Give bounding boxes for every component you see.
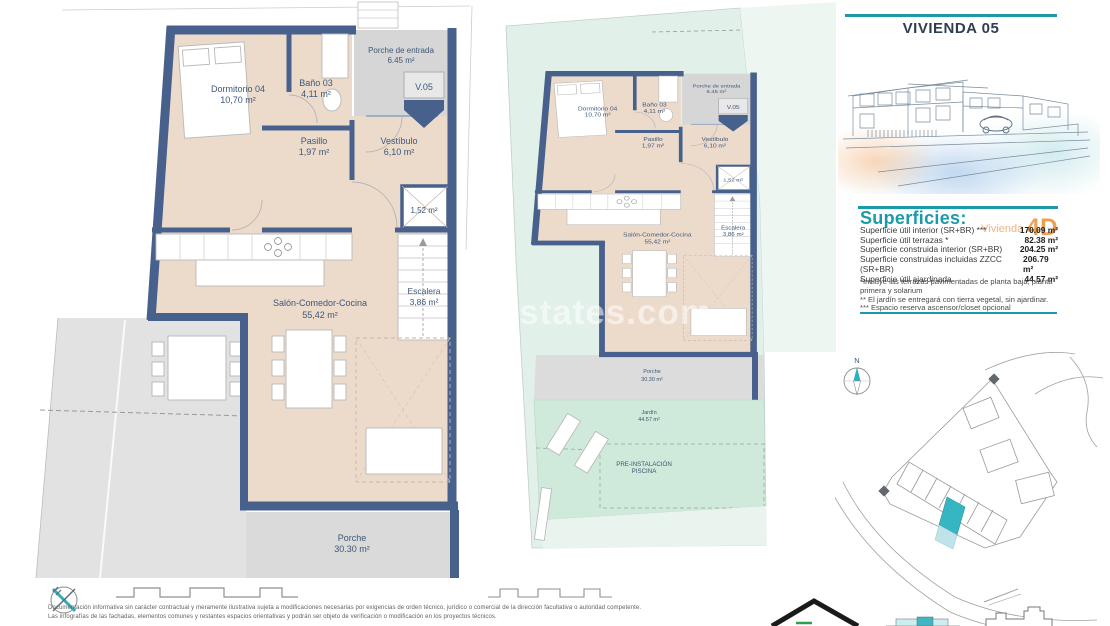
pool-label-line2: PISCINA bbox=[632, 468, 658, 475]
bath-fixture bbox=[658, 76, 677, 102]
superficies-row: Superficie construidas incluidas ZZCC (S… bbox=[860, 255, 1058, 274]
room-label: Vestíbulo bbox=[380, 136, 417, 146]
room-area: 4,11 m² bbox=[643, 109, 665, 114]
scale-bar-small bbox=[488, 589, 612, 597]
garden-area-label: 44.57 m² bbox=[638, 417, 660, 423]
room-label: Pasillo bbox=[643, 137, 663, 142]
room-label: Escalera bbox=[721, 225, 746, 230]
superficies-notes: *Incluye las terrazas pavimentadas de pl… bbox=[860, 278, 1060, 313]
car-sketch bbox=[980, 116, 1012, 133]
note: *Incluye las terrazas pavimentadas de pl… bbox=[860, 278, 1060, 296]
room-label: Pasillo bbox=[301, 136, 328, 146]
superficies-table: Superficie útil interior (SR+BR) *** 170… bbox=[860, 226, 1058, 284]
superficie-value: 206.79 m² bbox=[1023, 255, 1058, 274]
bath-fixture bbox=[322, 34, 348, 78]
room-area: 6,10 m² bbox=[384, 147, 415, 157]
room-label: Dormitorio 04 bbox=[577, 106, 617, 111]
kitchen-counter bbox=[537, 194, 680, 209]
room-area: 55,42 m² bbox=[644, 240, 670, 245]
room-label: Vestíbulo bbox=[701, 137, 729, 142]
room-area: 6.45 m² bbox=[387, 56, 414, 65]
kitchen-island bbox=[566, 209, 659, 224]
floor-plan-geometry: V.05 Dormitorio 04 10,70 m² Baño 03 4,11… bbox=[532, 71, 758, 356]
disclaimer-line2: Las infografías de las fachadas, element… bbox=[48, 614, 1058, 620]
room-label: Salón-Comedor-Cocina bbox=[273, 298, 367, 308]
dining-table bbox=[286, 330, 332, 408]
floor-plan-small: V.05 Dormitorio 04 10,70 m² Baño 03 4,11… bbox=[446, 56, 781, 399]
porch-label: Porche bbox=[338, 533, 367, 543]
wall bbox=[450, 510, 459, 578]
kitchen-counter bbox=[156, 234, 352, 260]
room-label: Baño 03 bbox=[299, 78, 333, 88]
room-area: 10,70 m² bbox=[584, 113, 610, 118]
porch-area-label: 30.30 m² bbox=[334, 544, 370, 554]
room-label: Baño 03 bbox=[642, 103, 667, 108]
room-area: 3,86 m² bbox=[410, 297, 439, 307]
garden-label: Jardín bbox=[641, 410, 656, 416]
disclaimer-line1: Documentación informativa sin carácter c… bbox=[48, 605, 1058, 611]
room-label: Porche de entrada bbox=[692, 83, 740, 88]
room-label: Dormitorio 04 bbox=[211, 84, 265, 94]
room-area: 3,86 m² bbox=[722, 232, 743, 237]
kitchen-island bbox=[196, 260, 324, 286]
room-area: 4,11 m² bbox=[301, 89, 331, 99]
room-area: 1,52 m² bbox=[410, 206, 437, 215]
room-area: 6.45 m² bbox=[706, 89, 726, 94]
facade-sketch-lines bbox=[838, 44, 1100, 194]
site-boundary bbox=[883, 379, 1057, 548]
north-label: N bbox=[854, 356, 859, 365]
plan-sheet: Porche 30.30 m² bbox=[0, 0, 1110, 626]
scale-bar-large bbox=[116, 588, 298, 597]
room-area: 55,42 m² bbox=[302, 310, 338, 320]
superficie-label: Superficie construidas incluidas ZZCC (S… bbox=[860, 255, 1023, 274]
room-area: 1,52 m² bbox=[723, 178, 743, 183]
page-title: VIVIENDA 05 bbox=[845, 20, 1057, 37]
room-area: 10,70 m² bbox=[220, 95, 256, 105]
room-label: Salón-Comedor-Cocina bbox=[623, 232, 692, 237]
compass-icon: N bbox=[844, 356, 870, 395]
dining-table bbox=[632, 250, 666, 296]
header-rule bbox=[845, 14, 1057, 17]
pool-label-line1: PRE-INSTALACIÓN bbox=[616, 461, 672, 468]
room-area: 1,97 m² bbox=[299, 147, 330, 157]
superficies-rule-bottom bbox=[860, 312, 1057, 314]
floor-plan-large: Porche 30.30 m² bbox=[0, 0, 500, 582]
room-label: Escalera bbox=[407, 286, 440, 296]
room-area: 1,97 m² bbox=[641, 143, 663, 148]
room-area: 6,10 m² bbox=[703, 143, 725, 148]
facade-sketch bbox=[838, 44, 1100, 194]
unit-marker-label: V.05 bbox=[415, 82, 433, 92]
unit-marker-label: V.05 bbox=[726, 105, 740, 110]
room-label: Porche de entrada bbox=[368, 46, 434, 55]
entry-steps bbox=[358, 2, 398, 28]
